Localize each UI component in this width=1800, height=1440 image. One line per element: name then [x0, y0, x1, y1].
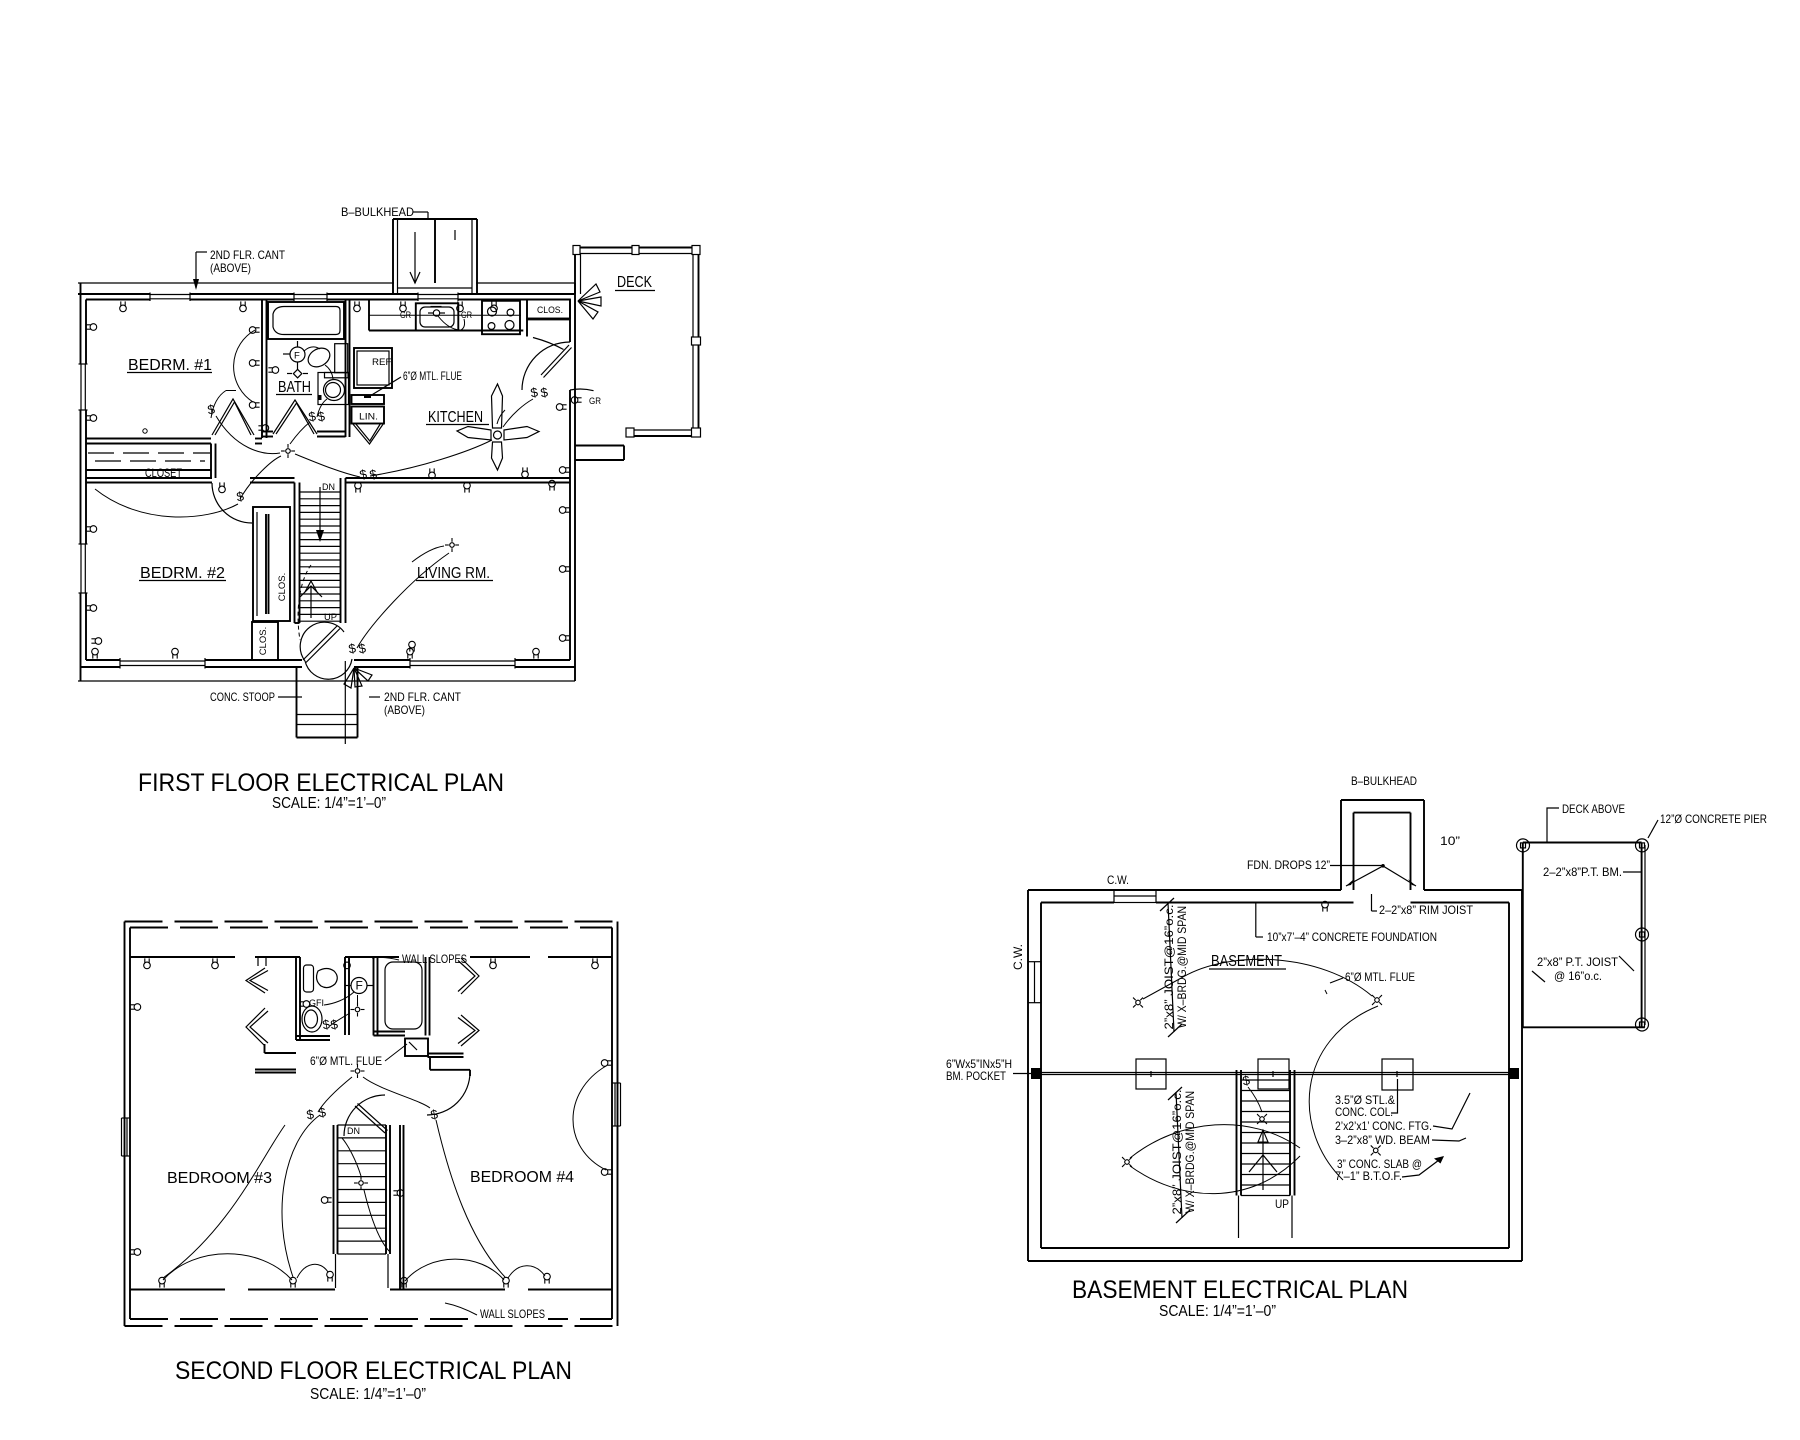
svg-text:C.W.: C.W.	[1011, 944, 1025, 970]
svg-text:6”Ø MTL. FLUE: 6”Ø MTL. FLUE	[310, 1054, 382, 1068]
svg-text:WALL SLOPES: WALL SLOPES	[402, 952, 467, 966]
svg-text:SCALE: 1/4”=1’–0”: SCALE: 1/4”=1’–0”	[310, 1386, 426, 1403]
svg-text:6”Ø MTL. FLUE: 6”Ø MTL. FLUE	[403, 369, 462, 383]
svg-text:BM. POCKET: BM. POCKET	[946, 1069, 1007, 1083]
svg-text:LIVING RM.: LIVING RM.	[417, 565, 490, 582]
svg-text:DN: DN	[322, 482, 335, 493]
svg-text:FDN. DROPS 12”: FDN. DROPS 12”	[1247, 858, 1330, 872]
svg-text:W/ X–BRDG.@MID SPAN: W/ X–BRDG.@MID SPAN	[1183, 1091, 1197, 1213]
svg-text:UP: UP	[324, 612, 337, 623]
svg-text:BEDROOM #4: BEDROOM #4	[470, 1169, 574, 1186]
svg-text:KITCHEN: KITCHEN	[428, 409, 483, 426]
svg-text:SCALE: 1/4”=1’–0”: SCALE: 1/4”=1’–0”	[272, 795, 386, 812]
svg-text:B–BULKHEAD: B–BULKHEAD	[1351, 774, 1417, 788]
svg-text:UP: UP	[1275, 1197, 1289, 1211]
svg-text:SECOND FLOOR ELECTRICAL PLA: SECOND FLOOR ELECTRICAL PLAN	[175, 1357, 572, 1385]
svg-text:C.W.: C.W.	[1107, 873, 1129, 887]
svg-text:DECK ABOVE: DECK ABOVE	[1562, 802, 1625, 816]
svg-text:BASEMENT ELECTRICAL PLAN: BASEMENT ELECTRICAL PLAN	[1072, 1276, 1408, 1304]
svg-text:WALL SLOPES: WALL SLOPES	[480, 1307, 545, 1321]
svg-text:2”x8” P.T. JOIST: 2”x8” P.T. JOIST	[1537, 955, 1619, 969]
svg-text:12”Ø CONCRETE PIER: 12”Ø CONCRETE PIER	[1660, 812, 1767, 826]
svg-text:F: F	[356, 979, 363, 993]
svg-text:2ND FLR. CANT: 2ND FLR. CANT	[384, 690, 462, 704]
svg-text:F: F	[294, 351, 300, 362]
svg-text:2ND FLR. CANT: 2ND FLR. CANT	[210, 248, 286, 262]
svg-text:2–2”x8”P.T. BM.: 2–2”x8”P.T. BM.	[1543, 865, 1622, 879]
svg-text:GR: GR	[461, 310, 472, 321]
svg-text:DN: DN	[347, 1126, 360, 1137]
svg-text:10”: 10”	[1440, 834, 1460, 848]
svg-text:6”Ø MTL. FLUE: 6”Ø MTL. FLUE	[1345, 970, 1415, 984]
svg-text:B–BULKHEAD: B–BULKHEAD	[341, 205, 414, 219]
svg-text:W/ X–BRDG.@MID SPAN: W/ X–BRDG.@MID SPAN	[1175, 906, 1189, 1028]
svg-text:BEDRM. #1: BEDRM. #1	[128, 357, 212, 374]
svg-text:BEDRM. #2: BEDRM. #2	[140, 565, 225, 582]
svg-text:CLOS.: CLOS.	[537, 305, 563, 316]
svg-text:(ABOVE): (ABOVE)	[210, 261, 251, 275]
svg-text:BATH: BATH	[278, 379, 311, 396]
svg-text:3–2”x8” WD. BEAM: 3–2”x8” WD. BEAM	[1335, 1133, 1430, 1147]
svg-text:CONC. STOOP: CONC. STOOP	[210, 690, 275, 704]
svg-text:GR: GR	[589, 396, 601, 407]
svg-text:2”x8” JOIST@16”o.c.: 2”x8” JOIST@16”o.c.	[1162, 905, 1176, 1030]
svg-text:CONC. COL.: CONC. COL.	[1335, 1105, 1393, 1119]
svg-text:DECK: DECK	[617, 274, 652, 291]
svg-text:2”x8” JOIST@16”o.c.: 2”x8” JOIST@16”o.c.	[1170, 1090, 1184, 1215]
svg-text:@ 16”o.c.: @ 16”o.c.	[1554, 969, 1602, 983]
svg-text:FIRST FLOOR ELECTRICAL PLAN: FIRST FLOOR ELECTRICAL PLAN	[138, 769, 504, 797]
svg-text:SCALE: 1/4”=1’–0”: SCALE: 1/4”=1’–0”	[1159, 1303, 1276, 1320]
svg-text:CLOS.: CLOS.	[258, 627, 269, 656]
svg-text:CLOS.: CLOS.	[277, 573, 288, 602]
svg-text:BEDROOM #3: BEDROOM #3	[167, 1170, 272, 1187]
svg-text:7’–1” B.T.O.F.: 7’–1” B.T.O.F.	[1335, 1169, 1402, 1183]
svg-text:GR: GR	[400, 310, 411, 321]
svg-text:LIN.: LIN.	[359, 412, 378, 423]
svg-text:REF.: REF.	[372, 357, 393, 368]
svg-text:2’x2’x1’ CONC. FTG.: 2’x2’x1’ CONC. FTG.	[1335, 1119, 1432, 1133]
svg-text:10”x7’–4” CONCRETE FOUNDATION: 10”x7’–4” CONCRETE FOUNDATION	[1267, 930, 1437, 944]
svg-text:2–2”x8” RIM JOIST: 2–2”x8” RIM JOIST	[1379, 903, 1474, 917]
svg-text:BASEMENT: BASEMENT	[1211, 953, 1282, 970]
svg-text:(ABOVE): (ABOVE)	[384, 703, 425, 717]
